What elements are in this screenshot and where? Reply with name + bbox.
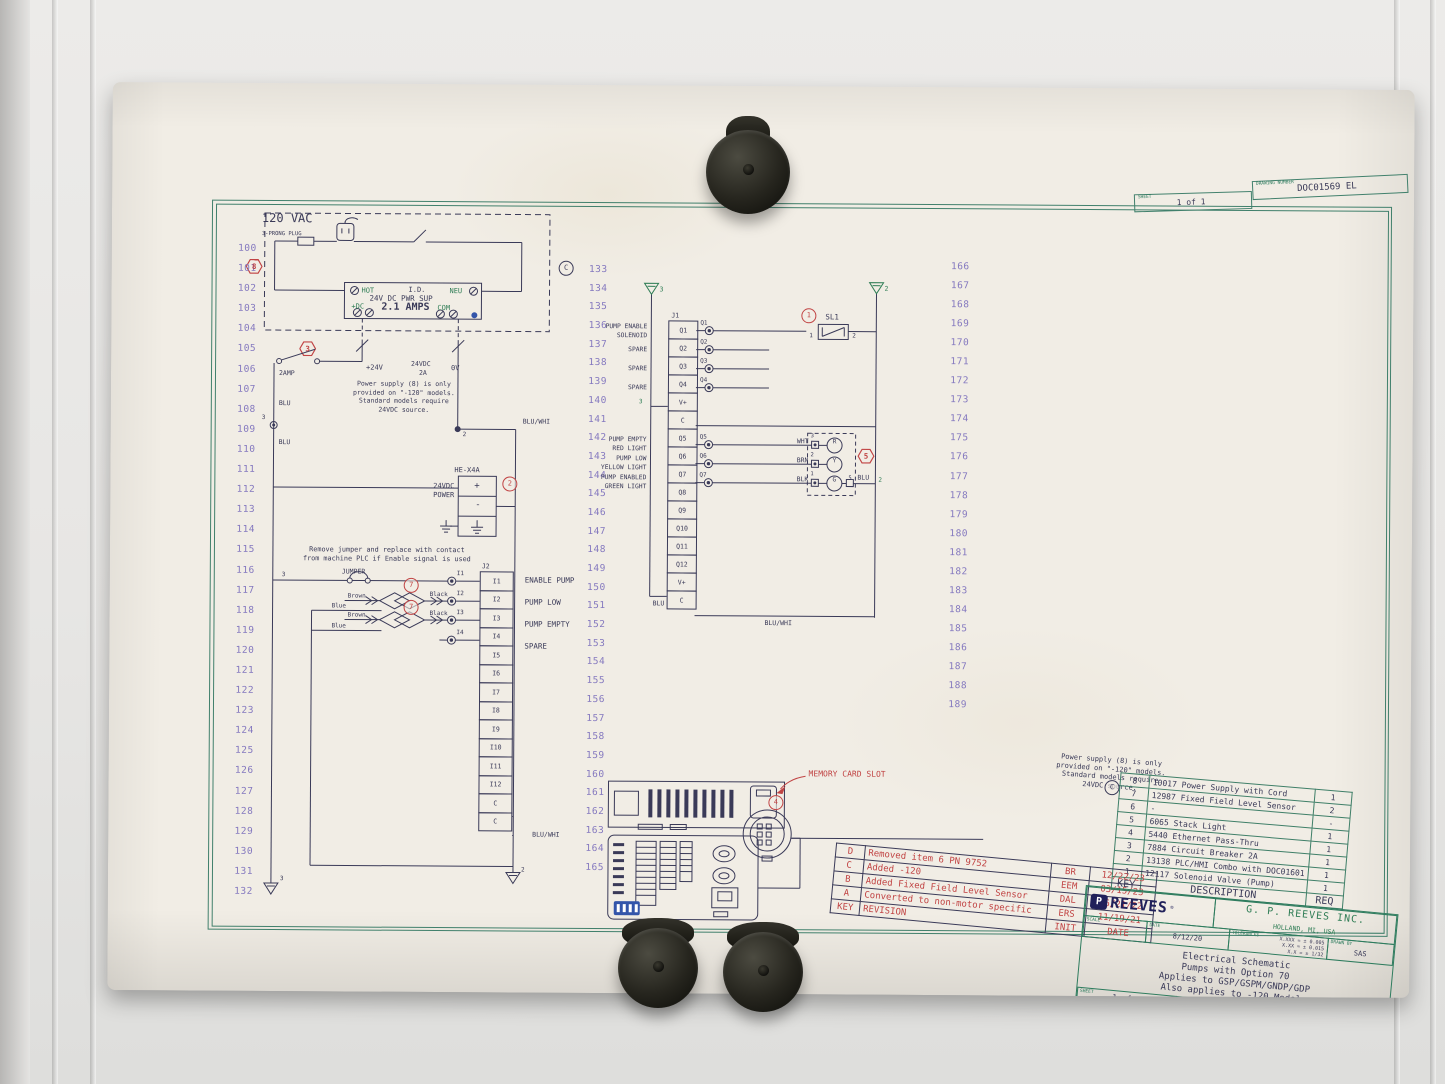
vdc-label: 24VDC bbox=[411, 360, 431, 369]
q3-signal-label: SPARE bbox=[559, 365, 647, 374]
revision-init-header: INIT bbox=[1045, 919, 1085, 937]
schematic-paper: SHEET 1 of 1 DRAWING NUMBER DOC01569 EL … bbox=[107, 82, 1415, 998]
drawn-by-value: SAS bbox=[1327, 947, 1393, 962]
j1-terminal: Q9 bbox=[667, 500, 697, 519]
pin-number: 2 bbox=[811, 452, 814, 458]
j2-signal-label: ENABLE PUMP bbox=[525, 576, 575, 598]
key-marker-breaker: 3 bbox=[299, 341, 316, 356]
j2-terminal: I3 bbox=[479, 608, 513, 628]
tolerances-values: X.XXX = ± 0.005 X.XX = ± 0.015 X.X = ± 1… bbox=[1278, 936, 1325, 958]
pin-number: 3 bbox=[811, 433, 814, 439]
knob-dimple bbox=[743, 164, 754, 175]
j2-terminal: I1 bbox=[480, 571, 514, 591]
j1-terminal: Q8 bbox=[667, 482, 697, 501]
j2-signal-label: PUMP LOW bbox=[525, 598, 575, 620]
j1-pin-label: Q2 bbox=[700, 339, 720, 358]
photo-of-schematic-on-door: { "frame": { "sheet_label": "SHEET", "sh… bbox=[0, 0, 1445, 1084]
j2-terminal-column: I1I2I3I4I5I6I7I8I9I10I11I12CC bbox=[478, 572, 514, 831]
knob-dimple bbox=[653, 961, 664, 972]
j2-pin-label: I3 bbox=[456, 609, 476, 629]
j1-pin-label: Q5 bbox=[700, 434, 720, 453]
blu-whi-label: BLU/WHI bbox=[532, 831, 559, 840]
power-supply-note: Power supply (8) is only provided on "-1… bbox=[339, 379, 469, 414]
j1-gnd-left-num: 3 bbox=[660, 285, 664, 294]
breaker-amp-label: 2AMP bbox=[279, 369, 295, 378]
registered-mark: ® bbox=[1170, 905, 1174, 911]
magnet-knob-bottom-right bbox=[723, 932, 803, 1012]
blu-label: BLU bbox=[857, 474, 869, 483]
wire3-num: 3 bbox=[282, 571, 286, 580]
pin5-number: 5 bbox=[848, 475, 851, 484]
vdc2a-label: 2A bbox=[419, 369, 427, 378]
date-label: DATE bbox=[1149, 923, 1160, 929]
j2-pin-label: I1 bbox=[457, 570, 477, 590]
drawn-by-label: DRAWN BY bbox=[1330, 940, 1352, 947]
plug-label: 3-PRONG PLUG bbox=[262, 230, 302, 239]
blu-whi-label: BLU/WHI bbox=[523, 418, 550, 427]
black-wire-label: Black bbox=[430, 591, 448, 600]
lamp-letter: G bbox=[829, 476, 839, 483]
q1-signal-label: PUMP ENABLE SOLENOID bbox=[559, 323, 647, 341]
jumper-note: Remove jumper and replace with contact f… bbox=[282, 545, 492, 563]
door-groove bbox=[1430, 0, 1436, 1084]
j2-signal-label: SPARE bbox=[524, 642, 574, 664]
vac-label: 120 VAC bbox=[262, 214, 313, 223]
j2-terminal: I9 bbox=[479, 719, 513, 739]
q7-signal-label: PUMP ENABLED GREEN LIGHT bbox=[550, 474, 646, 492]
jumper-label: JUMPER bbox=[342, 567, 366, 576]
j2-pin-label: I2 bbox=[457, 590, 477, 610]
j2-terminal: C bbox=[478, 812, 512, 832]
key-marker-sensor-1: 7 bbox=[404, 578, 419, 593]
brown-wire-label: Brown bbox=[348, 592, 366, 601]
j2-terminal: I6 bbox=[479, 664, 513, 684]
j1-terminal: C bbox=[668, 410, 698, 429]
blu-label: BLU bbox=[653, 599, 665, 608]
magnet-knob-top bbox=[706, 130, 790, 214]
j2-signal-label: PUMP EMPTY bbox=[524, 620, 574, 642]
key-marker-stack-light: 5 bbox=[857, 449, 874, 464]
he-x4a-label: HE-X4A bbox=[454, 466, 479, 475]
stack-light-rows: WHT3RBRN2YBLK1G bbox=[774, 435, 884, 493]
sl1-t1: 1 bbox=[809, 332, 813, 341]
q2-signal-label: SPARE bbox=[559, 346, 647, 355]
sl1-t2: 2 bbox=[852, 333, 856, 342]
ground3-num: 3 bbox=[280, 875, 284, 884]
q4-signal-label: SPARE bbox=[559, 384, 647, 393]
neu-label: NEU bbox=[449, 287, 462, 296]
j1-pin-label: Q1 bbox=[700, 320, 720, 339]
j1-pin-label: Q7 bbox=[699, 472, 719, 491]
j1-pin-label: Q6 bbox=[699, 453, 719, 472]
j2-terminal: I8 bbox=[479, 701, 513, 721]
lamp-letter: R bbox=[830, 438, 840, 445]
j1-terminal: Q1 bbox=[668, 320, 698, 339]
revision-marker-c: C bbox=[559, 261, 574, 276]
j2-pin-labels: I1I2I3I4 bbox=[456, 570, 476, 648]
j1-terminal: Q3 bbox=[668, 356, 698, 375]
gp-reeves-logo-icon: P bbox=[1090, 893, 1108, 910]
scale-cell: SCALE - bbox=[1082, 915, 1148, 943]
zero-v-label: 0V bbox=[451, 364, 459, 373]
q6-signal-label: PUMP LOW YELLOW LIGHT bbox=[550, 455, 646, 473]
sl1-label: SL1 bbox=[825, 313, 839, 322]
key-marker-plc-power: 2 bbox=[502, 476, 517, 491]
j2-signal-labels: ENABLE PUMPPUMP LOWPUMP EMPTYSPARE bbox=[524, 576, 574, 664]
j1-terminal: Q7 bbox=[667, 464, 697, 483]
j2-terminal: I12 bbox=[478, 775, 512, 795]
j2-terminal: I7 bbox=[479, 682, 513, 702]
j1-pin-label: Q4 bbox=[700, 377, 720, 396]
j1-terminal: Q4 bbox=[668, 374, 698, 393]
j1-terminal: C bbox=[667, 590, 697, 609]
j1-label: J1 bbox=[671, 311, 679, 320]
j2-terminal: C bbox=[478, 793, 512, 813]
node3-num: 3 bbox=[262, 414, 266, 423]
key-marker-solenoid: 1 bbox=[801, 308, 816, 323]
blue-wire-label: Blue bbox=[332, 602, 347, 611]
scale-value: - bbox=[1083, 924, 1146, 938]
j1-pin-labels-top: Q1Q2Q3Q4 bbox=[700, 320, 720, 396]
j2-terminal: I5 bbox=[479, 645, 513, 665]
plus-terminal: + bbox=[474, 482, 479, 491]
com-label: COM bbox=[437, 304, 450, 313]
j1-gnd-right-num: 2 bbox=[885, 285, 889, 294]
wire2-num: 2 bbox=[878, 477, 882, 486]
j1-terminal: V+ bbox=[668, 392, 698, 411]
plus24-label: +24V bbox=[366, 364, 383, 373]
24vdc-power-label: 24VDC POWER bbox=[410, 482, 454, 499]
key-marker-ethernet: 4 bbox=[768, 795, 783, 810]
tolerances-label: TOLERANCES bbox=[1232, 931, 1259, 939]
wire-color-label: WHT bbox=[797, 437, 809, 445]
minus-terminal: - bbox=[475, 501, 480, 510]
date-value: 8/12/20 bbox=[1146, 930, 1228, 946]
j1-pin-label: Q3 bbox=[700, 358, 720, 377]
blu-whi-label: BLU/WHI bbox=[764, 619, 791, 628]
key-marker-sensor-2: 7 bbox=[404, 600, 419, 615]
logo-word: REEVES bbox=[1110, 893, 1169, 916]
plus-dc-label: +DC bbox=[351, 302, 364, 311]
j2-terminal: I10 bbox=[479, 738, 513, 758]
j2-pin-label: I4 bbox=[456, 629, 476, 649]
brown-wire-label: Brown bbox=[348, 611, 366, 620]
j1-terminal: V+ bbox=[667, 572, 697, 591]
scale-label: SCALE bbox=[1086, 917, 1100, 923]
j2-terminal: I4 bbox=[479, 627, 513, 647]
j2-terminal: I11 bbox=[479, 756, 513, 776]
node2-num: 2 bbox=[463, 431, 467, 440]
key-marker-power-supply: 8 bbox=[246, 259, 263, 274]
blu-label: BLU bbox=[279, 399, 291, 408]
j1-terminal-column: Q1Q2Q3Q4V+CQ5Q6Q7Q8Q9Q10Q11Q12V+C bbox=[667, 321, 699, 609]
knob-dimple bbox=[758, 965, 769, 976]
ground2-num: 2 bbox=[521, 867, 525, 876]
door-groove bbox=[90, 0, 96, 1084]
lamp-letter: Y bbox=[829, 457, 839, 464]
memory-card-slot-label: MEMORY CARD SLOT bbox=[809, 770, 886, 779]
revision-key-header: KEY bbox=[830, 899, 860, 916]
j1-terminal: Q11 bbox=[667, 536, 697, 555]
j1-terminal: Q2 bbox=[668, 338, 698, 357]
q5-signal-label: PUMP EMPTY RED LIGHT bbox=[551, 436, 647, 454]
pin-number: 1 bbox=[810, 471, 813, 477]
j1-terminal: Q12 bbox=[667, 554, 697, 573]
magnet-knob-bottom-left bbox=[618, 928, 698, 1008]
wire-color-label: BLK bbox=[797, 475, 809, 483]
j1-terminal: Q5 bbox=[668, 428, 698, 447]
blu-label: BLU bbox=[279, 438, 291, 447]
j1-pin-labels-bottom: Q5Q6Q7 bbox=[699, 434, 719, 491]
door-edge bbox=[0, 0, 30, 1084]
j2-label: J2 bbox=[482, 562, 490, 571]
vplus-wire-num: 3 bbox=[639, 398, 643, 407]
amps-label: 2.1 AMPS bbox=[381, 304, 429, 313]
black-wire-label: Black bbox=[430, 610, 448, 619]
j2-terminal: I2 bbox=[480, 590, 514, 610]
wire-color-label: BRN bbox=[797, 456, 809, 464]
j1-terminal: Q6 bbox=[667, 446, 697, 465]
j1-terminal: Q10 bbox=[667, 518, 697, 537]
door-groove bbox=[52, 0, 58, 1084]
blue-wire-label: Blue bbox=[331, 622, 346, 631]
